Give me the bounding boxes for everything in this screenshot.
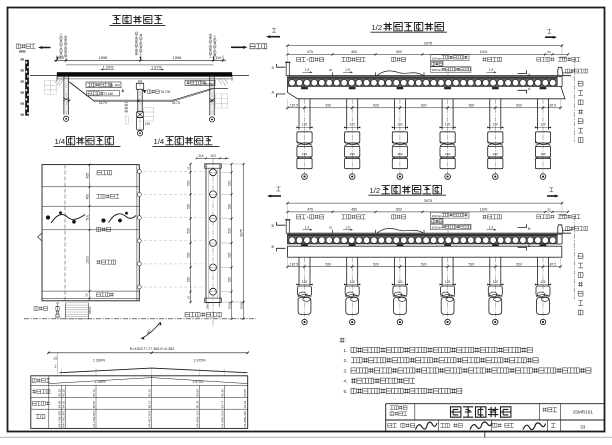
svg-text:100mm: 100mm (432, 56, 443, 60)
svg-text:520: 520 (326, 104, 332, 108)
svg-text:1/4: 1/4 (55, 137, 66, 146)
svg-text:500: 500 (396, 208, 402, 212)
svg-text:2.: 2. (344, 358, 348, 363)
svg-text:50: 50 (85, 293, 89, 297)
svg-text:520: 520 (469, 263, 475, 267)
svg-text:475: 475 (307, 50, 313, 54)
svg-text:K4+752.301: K4+752.301 (61, 410, 65, 427)
svg-text:110: 110 (58, 55, 65, 60)
svg-text:500: 500 (396, 50, 402, 54)
svg-text:K4+862.023: K4+862.023 (220, 410, 224, 427)
svg-text:110: 110 (215, 55, 222, 60)
svg-text:80.12: 80.12 (148, 400, 152, 408)
svg-text:520: 520 (227, 252, 231, 258)
svg-text:5.: 5. (344, 389, 348, 394)
svg-text:1.5: 1.5 (345, 68, 350, 72)
svg-text:1100: 1100 (480, 50, 488, 54)
svg-text:100mm: 100mm (432, 226, 443, 230)
svg-text:15MR101: 15MR101 (573, 410, 594, 415)
svg-text:1.5: 1.5 (305, 68, 310, 72)
svg-text:1596: 1596 (173, 55, 182, 60)
svg-text:85.35: 85.35 (61, 389, 65, 397)
svg-text:520: 520 (186, 228, 190, 234)
svg-text:1.5: 1.5 (489, 68, 494, 72)
svg-text:520: 520 (227, 180, 231, 186)
svg-text:50: 50 (547, 50, 551, 54)
svg-text:81.400: 81.400 (110, 83, 120, 87)
svg-text:84.91: 84.91 (61, 400, 65, 408)
svg-text:520: 520 (469, 104, 475, 108)
svg-text:180/2: 180/2 (88, 306, 92, 314)
svg-text:114: 114 (198, 154, 203, 158)
svg-text:450: 450 (351, 50, 357, 54)
svg-text:520: 520 (516, 263, 522, 267)
svg-text:4.: 4. (344, 379, 348, 384)
svg-text:2975: 2975 (424, 40, 433, 45)
svg-text:71.640: 71.640 (104, 92, 114, 96)
svg-text:520: 520 (373, 104, 379, 108)
svg-text:187.5: 187.5 (290, 263, 298, 267)
svg-text:120: 120 (493, 280, 499, 284)
svg-text:1.5: 1.5 (489, 226, 494, 230)
svg-text:475: 475 (307, 208, 313, 212)
svg-text:1.97%: 1.97% (151, 65, 162, 69)
svg-text:187.5: 187.5 (290, 104, 298, 108)
svg-text:R=4300 T=77.366 E=0.382: R=4300 T=77.366 E=0.382 (130, 347, 175, 351)
svg-text:1.5: 1.5 (345, 226, 350, 230)
svg-text:150: 150 (350, 152, 355, 156)
svg-text:20: 20 (329, 226, 333, 230)
svg-text:1.: 1. (344, 348, 348, 353)
svg-text:520: 520 (186, 180, 190, 186)
svg-text:84.93: 84.93 (243, 400, 247, 408)
svg-text:20: 20 (329, 68, 333, 72)
svg-text:85.394: 85.394 (204, 82, 214, 86)
svg-text:100mm: 100mm (432, 68, 443, 72)
svg-text:150: 150 (540, 152, 545, 156)
svg-text:520: 520 (421, 104, 427, 108)
svg-text:1.975%: 1.975% (192, 380, 203, 384)
svg-text:450: 450 (351, 208, 357, 212)
svg-text:80.25: 80.25 (195, 400, 199, 408)
svg-text:50: 50 (547, 208, 551, 212)
svg-text:120: 120 (445, 280, 451, 284)
svg-text:520: 520 (227, 228, 231, 234)
svg-text:K4+886.300: K4+886.300 (243, 410, 247, 427)
svg-text:1100: 1100 (480, 208, 488, 212)
svg-text:120: 120 (302, 280, 308, 284)
svg-text:120: 120 (302, 123, 308, 127)
svg-text:520: 520 (516, 104, 522, 108)
svg-text:K4+812.841: K4+812.841 (148, 410, 152, 427)
svg-text:1/2: 1/2 (372, 23, 383, 32)
svg-text:120: 120 (350, 123, 356, 127)
svg-text:120: 120 (350, 280, 356, 284)
svg-text:450: 450 (85, 194, 89, 200)
svg-text:1.975%: 1.975% (193, 358, 206, 362)
svg-text:520: 520 (186, 204, 190, 210)
svg-text:2975: 2975 (424, 198, 433, 203)
svg-text:100/2: 100/2 (206, 302, 210, 310)
svg-text:500: 500 (85, 215, 89, 221)
svg-text:3.: 3. (344, 368, 348, 373)
svg-text:85.05: 85.05 (243, 389, 247, 397)
svg-text:1500: 1500 (85, 256, 89, 264)
svg-text:120: 120 (540, 280, 546, 284)
svg-text:85.84: 85.84 (195, 389, 199, 397)
svg-text:520: 520 (326, 263, 332, 267)
svg-text:84.77: 84.77 (220, 400, 224, 408)
svg-text:86.10: 86.10 (148, 389, 152, 397)
svg-text:150: 150 (445, 152, 450, 156)
svg-text:150: 150 (145, 122, 151, 126)
svg-text:K4+842.113: K4+842.113 (195, 411, 199, 428)
svg-text:120: 120 (540, 123, 546, 127)
svg-text:1.5: 1.5 (305, 226, 310, 230)
svg-text:100/2: 100/2 (227, 301, 231, 309)
svg-text:120: 120 (397, 280, 403, 284)
svg-text:1170: 1170 (172, 101, 180, 105)
svg-text:100mm: 100mm (432, 214, 443, 218)
svg-text:3275: 3275 (239, 229, 243, 237)
svg-text:180/2: 180/2 (239, 301, 243, 309)
svg-text:520: 520 (373, 263, 379, 267)
svg-text:1170: 1170 (99, 101, 107, 105)
svg-text:120: 120 (397, 123, 403, 127)
svg-text:520: 520 (421, 263, 427, 267)
svg-text:1.289%: 1.289% (93, 358, 106, 362)
svg-text:425: 425 (85, 173, 89, 179)
svg-text:187.5: 187.5 (548, 263, 556, 267)
svg-text:187.5: 187.5 (548, 104, 556, 108)
svg-text:1/2: 1/2 (370, 186, 381, 195)
svg-text:1.29%: 1.29% (103, 65, 114, 69)
svg-text:K4+782.570: K4+782.570 (92, 410, 96, 427)
svg-text:150: 150 (302, 152, 307, 156)
svg-text:103: 103 (210, 154, 216, 158)
svg-text:150: 150 (397, 152, 402, 156)
svg-text:1596: 1596 (99, 55, 108, 60)
svg-text:85.45: 85.45 (220, 389, 224, 397)
svg-text:120: 120 (445, 123, 451, 127)
svg-text:120: 120 (493, 123, 499, 127)
svg-text:1/4: 1/4 (154, 137, 165, 146)
svg-text:150: 150 (493, 152, 498, 156)
svg-text:520: 520 (227, 277, 231, 283)
svg-text::: : (346, 338, 347, 343)
svg-text:76.700: 76.700 (161, 90, 171, 94)
svg-text:520: 520 (227, 204, 231, 210)
svg-text:1.289%: 1.289% (94, 380, 105, 384)
svg-text:520: 520 (186, 252, 190, 258)
svg-text:520: 520 (186, 277, 190, 283)
svg-text:80.87: 80.87 (92, 400, 96, 408)
svg-text:85.72: 85.72 (92, 389, 96, 397)
svg-text:33: 33 (580, 424, 586, 429)
